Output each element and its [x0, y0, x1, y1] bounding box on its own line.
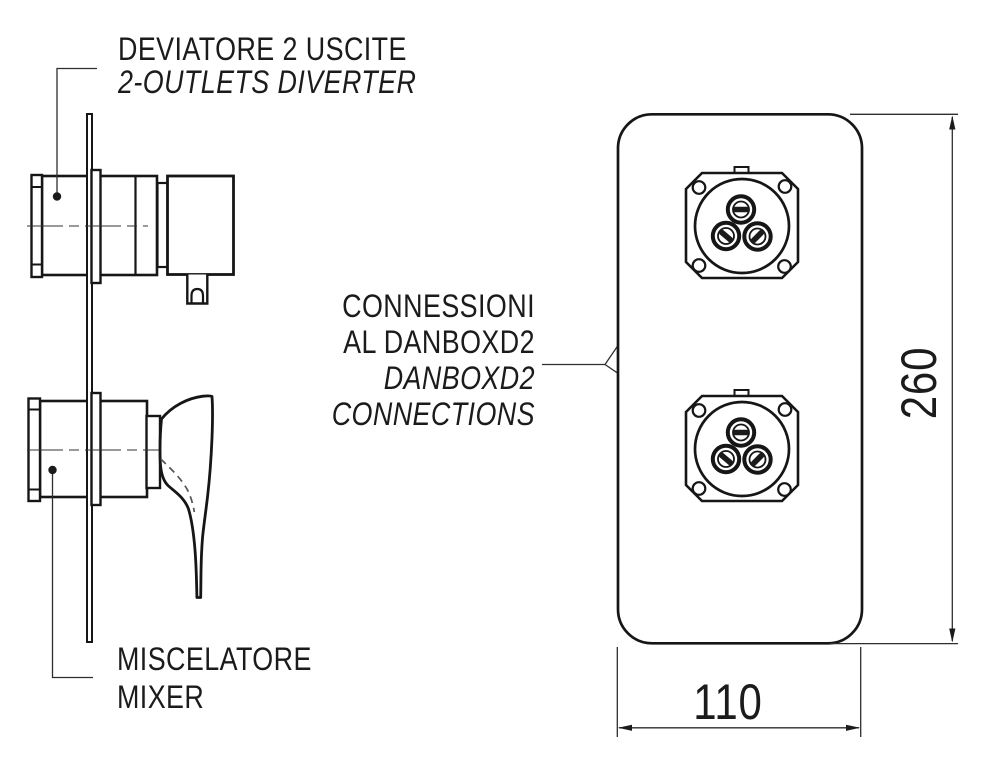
bottom-port-body-circle: [695, 402, 789, 496]
bottom-port-screw-left: [713, 446, 739, 472]
bottom-port-hole-tl: [693, 404, 706, 417]
diverter-label: DEVIATORE 2 USCITE 2-OUTLETS DIVERTER: [118, 33, 416, 99]
width-arrow-left: [618, 725, 632, 731]
connections-label-english-line1: DANBOXD2: [332, 360, 535, 396]
height-dimension-value: 260: [894, 347, 944, 420]
mixer-label-english: MIXER: [117, 678, 312, 716]
bottom-port-hole-tr: [779, 403, 792, 416]
connections-label: CONNESSIONI AL DANBOXD2 DANBOXD2 CONNECT…: [332, 288, 535, 432]
width-arrow-right: [846, 725, 860, 731]
height-arrow-up: [949, 116, 955, 130]
technical-drawing-page: DEVIATORE 2 USCITE 2-OUTLETS DIVERTER CO…: [0, 0, 1000, 776]
leader-dot-mixer: [48, 466, 56, 474]
mixer-escutcheon-sleeve: [92, 393, 101, 505]
bottom-port-hole-bl: [693, 482, 706, 495]
bottom-port-hole-br: [778, 483, 791, 496]
top-port-screw-left: [713, 223, 739, 249]
top-port-body-circle: [695, 179, 789, 273]
bottom-port-screw-right: [744, 446, 770, 472]
connections-label-english-line2: CONNECTIONS: [332, 396, 535, 432]
top-port-hole-tr: [779, 180, 792, 193]
top-port-screw-right: [744, 223, 770, 249]
screw-slot: [733, 430, 749, 436]
width-dimension-value: 110: [693, 677, 762, 727]
diverter-neck: [158, 183, 168, 267]
mixer-lever-handle: [160, 396, 213, 598]
top-port-hole-tl: [693, 181, 706, 194]
leader-dot-diverter: [53, 192, 61, 200]
diverter-label-italian: DEVIATORE 2 USCITE: [118, 33, 416, 66]
top-port-hole-br: [778, 260, 791, 273]
bottom-port-screw-top: [728, 419, 754, 445]
top-connection-port: [686, 167, 798, 278]
bottom-connection-port: [686, 390, 798, 501]
diverter-label-english: 2-OUTLETS DIVERTER: [118, 66, 416, 99]
screw-slot: [733, 207, 749, 213]
connections-label-italian-line2: AL DANBOXD2: [332, 324, 535, 360]
diverter-knob: [168, 176, 234, 275]
top-port-screw-top: [728, 196, 754, 222]
front-plate-drawing: [618, 114, 862, 643]
top-port-hole-bl: [693, 259, 706, 272]
mixer-label-italian: MISCELATORE: [117, 640, 312, 678]
height-arrow-down: [949, 629, 955, 643]
connections-label-italian-line1: CONNESSIONI: [332, 288, 535, 324]
mixer-label: MISCELATORE MIXER: [117, 640, 312, 716]
mixer-cartridge-connector: [147, 416, 161, 488]
